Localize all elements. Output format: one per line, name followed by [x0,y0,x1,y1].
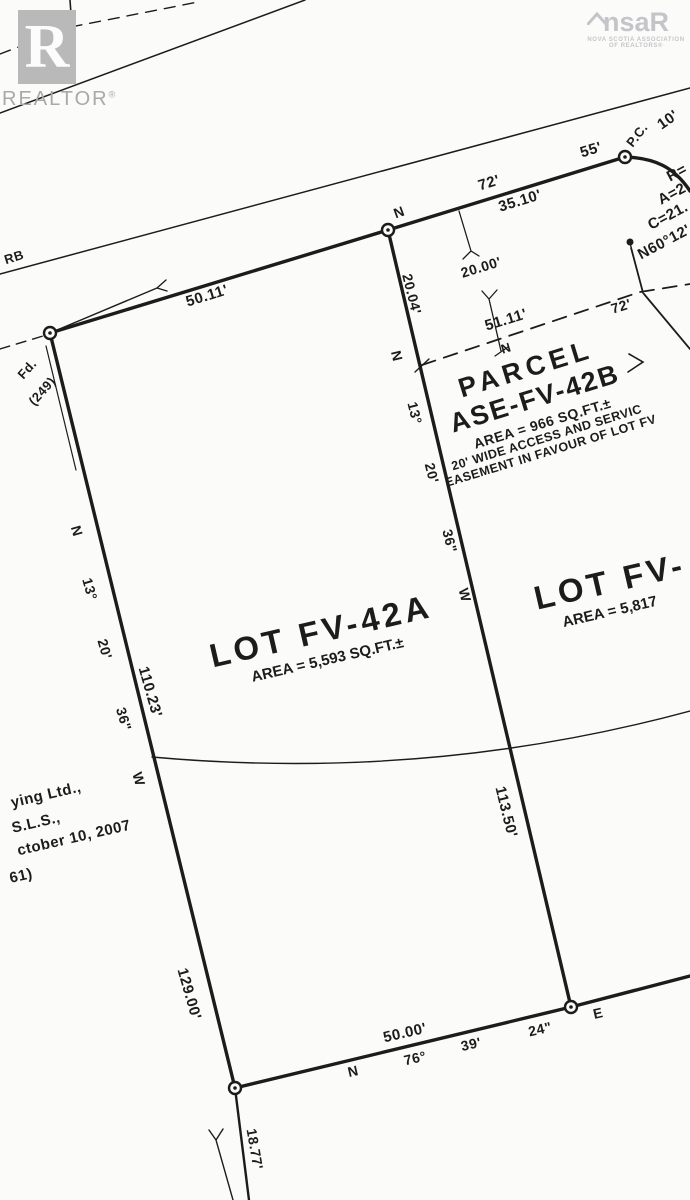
witness-thin-left [46,346,76,470]
house-roof-icon [587,12,607,25]
curb-line [0,88,690,274]
survey-plan-page: { "page": { "background": "#fbfbfa", "in… [0,0,690,1200]
realtor-logo-letter: R [25,16,70,78]
monument-top-middle [382,224,394,236]
nsar-wordmark: ns aR [586,12,686,34]
nsar-text-right: aR [635,12,670,34]
dim-leader-upper [459,211,479,259]
nsar-logo: ns aR NOVA SCOTIA ASSOCIATION OF REALTOR… [586,12,686,49]
realtor-wordmark: REALTOR® [2,88,152,111]
plan-canvas: R REALTOR® ns aR NOVA SCOTIA ASSOCIATION… [0,0,690,1200]
witness-leader-topleft [50,280,167,333]
boundary-bottom [235,976,690,1088]
monument-topleft [44,327,56,339]
monument-bottom-left [229,1082,241,1094]
setback-arc [152,711,690,764]
nsar-subtitle-2: OF REALTORS® [586,43,686,49]
dashed-into-monument [0,336,43,349]
boundary-left [50,333,235,1088]
realtor-registered-mark: ® [109,89,118,99]
witness-bottom [209,1129,233,1200]
realtor-logo-box: R [18,10,76,84]
nsar-subtitle-1: NOVA SCOTIA ASSOCIATION [586,37,686,43]
realtor-logo: R REALTOR® [2,10,152,111]
monument-bottom-right [565,1001,577,1013]
nsar-text-left: ns [603,12,635,34]
monument-pc [619,151,631,163]
